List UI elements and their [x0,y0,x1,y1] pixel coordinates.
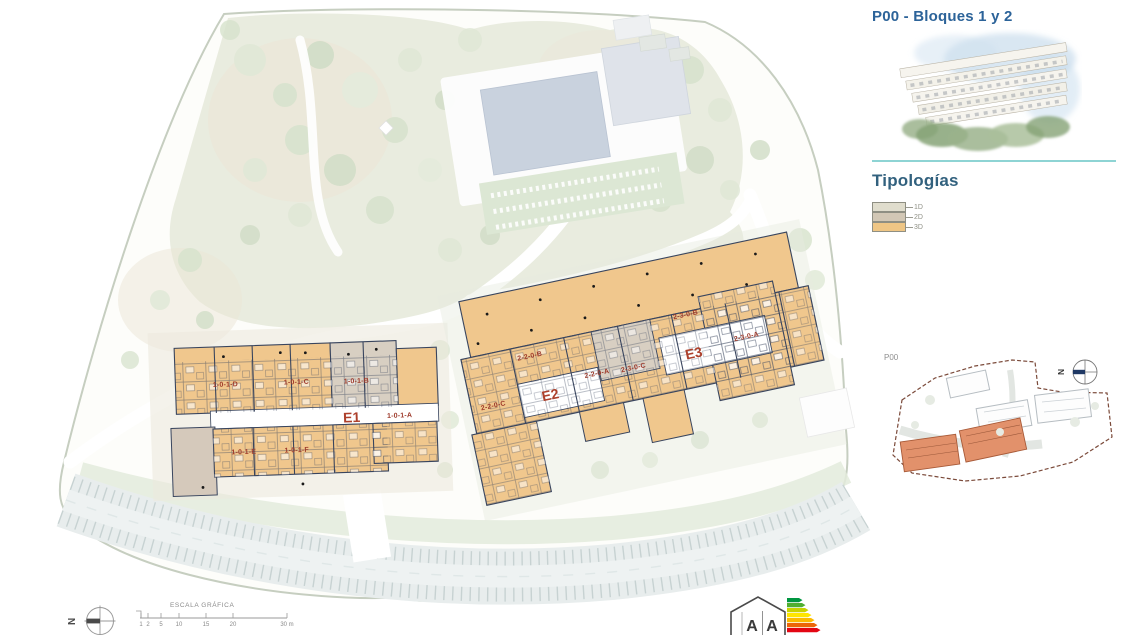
typology-label: 2D [913,214,923,221]
typologies-heading: Tipologías [872,171,1124,191]
teal-divider [872,160,1116,162]
plan-sheet: 1-0-1-D 1-0-1-C 1-0-1-B 1-0-1-A 1-0-1-E … [0,0,1130,635]
scale-tick: 10 [176,622,183,628]
sheet-title: P00 - Bloques 1 y 2 [872,8,1124,25]
scale-tick: 20 [230,622,237,628]
building-watercolor-illustration [898,29,1082,153]
energy-letter: A [766,618,778,635]
key-plan-highlighted-blocks [900,418,1026,472]
unit-label[interactable]: 1-0-1-C [284,379,309,387]
legend-leader-line [906,217,913,218]
e1-lower-wing [171,427,217,496]
energy-arrows [787,598,821,632]
unit-label[interactable]: 1-0-1-F [284,447,309,455]
north-letter: N [1056,369,1066,375]
unit-label[interactable]: 1-0-1-B [344,378,369,386]
typology-swatch-3d [872,222,906,232]
unit-label[interactable]: 1-0-1-A [387,412,412,420]
unit-label[interactable]: 1-0-1-E [231,449,256,457]
typology-row-1d: 1D [872,202,1124,212]
typologies-legend: 1D 2D 3D [872,202,1124,232]
legend-leader-line [906,227,913,228]
typology-label: 1D [913,204,923,211]
typology-swatch-1d [872,202,906,212]
typology-swatch-2d [872,212,906,222]
scale-tick: 15 [203,622,210,628]
north-compass: N [67,606,116,635]
key-plan-north-compass: N [1056,360,1097,384]
building-e1: 1-0-1-D 1-0-1-C 1-0-1-B 1-0-1-A 1-0-1-E … [148,323,454,501]
legend-leader-line [906,207,913,208]
energy-letter: A [746,618,758,635]
scale-tick: 2 [146,622,150,628]
key-plan: P00 N [884,353,1112,481]
scale-end-label: 30 m [280,622,293,628]
north-letter: N [67,618,78,625]
side-panel: P00 - Bloques 1 y 2 [872,8,1124,232]
scale-bar-title: ESCALA GRÁFICA [170,600,234,609]
pool [480,72,610,175]
scale-tick: 5 [159,622,163,628]
key-plan-label: P00 [884,353,899,362]
block-label[interactable]: E1 [343,409,361,426]
scale-bar: ESCALA GRÁFICA 1 2 5 10 15 20 30 m [136,600,294,628]
unit-label[interactable]: 1-0-1-D [213,381,238,389]
typology-row-2d: 2D [872,212,1124,222]
watercolor-vegetation [902,116,1070,151]
energy-rating-logo: A A [731,597,821,635]
typology-row-3d: 3D [872,222,1124,232]
typology-label: 3D [913,224,923,231]
scale-tick: 1 [139,622,143,628]
